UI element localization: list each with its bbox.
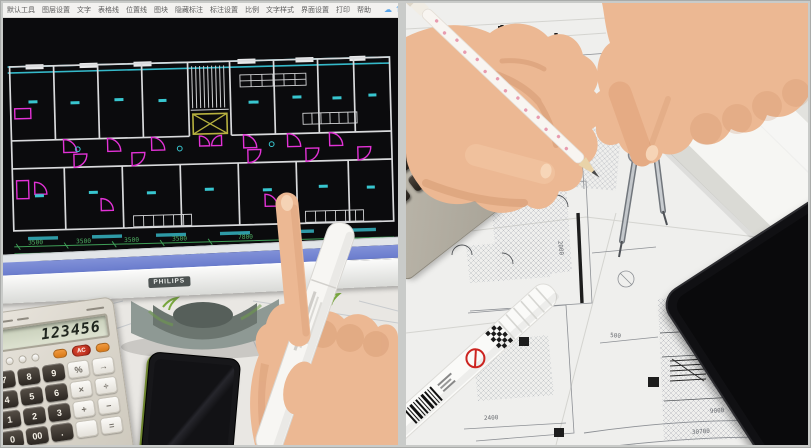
smartphone-screen xyxy=(147,359,234,445)
cad-menu-item: 文字样式 xyxy=(266,5,294,15)
cad-menu-bar: 默认工具 图层设置 文字 表格线 位置线 图块 隐藏标注 标注设置 比例 文字样… xyxy=(3,3,398,18)
memory-button xyxy=(31,353,40,362)
key-percent: % xyxy=(66,359,90,379)
cad-menu-item: 打印 xyxy=(336,5,350,15)
key-0: 0 xyxy=(3,429,25,445)
key-0: 0 xyxy=(406,184,411,227)
smartphone xyxy=(141,351,242,445)
key-multiply: × xyxy=(69,379,93,399)
key-equals: = xyxy=(99,415,123,435)
cad-dim-label: 3500 xyxy=(28,239,43,246)
key-dot: . xyxy=(50,422,74,442)
key-6: 6 xyxy=(44,383,68,403)
key-7: 7 xyxy=(3,370,16,390)
key-4: 4 xyxy=(3,389,19,409)
svg-text:30700: 30700 xyxy=(692,428,711,436)
cad-dim-label: 3500 xyxy=(124,237,139,244)
key-backspace: → xyxy=(91,356,115,376)
left-photo-cad-workstation: 默认工具 图层设置 文字 表格线 位置线 图块 隐藏标注 标注设置 比例 文字样… xyxy=(3,3,398,445)
cloud-icon: ☁ xyxy=(384,6,392,14)
cad-menu-item: 界面设置 xyxy=(301,5,329,15)
key-1: 1 xyxy=(3,409,22,429)
cad-dim-label: 7800 xyxy=(238,234,253,241)
key-plus: + xyxy=(72,399,96,419)
svg-text:9000: 9000 xyxy=(710,407,725,415)
cad-menu-item: 图层设置 xyxy=(42,5,70,15)
cad-dim-label: 3500 xyxy=(172,235,187,242)
right-photo-blueprint-desk: 2000 500 2400 xyxy=(406,3,808,445)
blueprint-dim: 500 xyxy=(610,332,622,340)
monitor-brand-logo: PHILIPS xyxy=(148,276,190,288)
cad-walls xyxy=(10,57,394,231)
key-9: 9 xyxy=(42,363,66,383)
cad-floor-plan: 3500 3500 3500 3500 7800 56900 xyxy=(3,18,398,261)
cad-menu-icon-group: ☁ ⇅ ▤ ♡ ⓘ xyxy=(384,6,398,14)
key-3: 3 xyxy=(47,402,71,422)
cad-menu-item: 帮助 xyxy=(357,5,371,15)
svg-text:2400: 2400 xyxy=(484,414,499,422)
cad-menu-item: 表格线 xyxy=(98,5,119,15)
cad-menu-item: 图块 xyxy=(154,5,168,15)
key-2: 2 xyxy=(22,406,46,426)
cad-teal-band xyxy=(28,229,376,238)
memory-button xyxy=(18,354,27,363)
photo-collage: 默认工具 图层设置 文字 表格线 位置线 图块 隐藏标注 标注设置 比例 文字样… xyxy=(0,0,811,448)
sync-icon: ⇅ xyxy=(396,6,398,14)
correct-button xyxy=(53,348,68,359)
off-button xyxy=(95,342,110,353)
calculator-keypad: 7 8 9 % → 4 5 6 × ÷ 1 2 3 + − 0 00 . = xyxy=(3,356,124,445)
cad-menu-item: 文字 xyxy=(77,5,91,15)
calculator-corner-keys: 7 4 0 1 xyxy=(406,131,454,226)
cad-room-labels xyxy=(28,91,378,197)
memory-button xyxy=(5,356,14,365)
key-8: 8 xyxy=(17,366,41,386)
cad-menu-item: 比例 xyxy=(245,5,259,15)
key-blank xyxy=(75,419,99,439)
key-divide: ÷ xyxy=(94,376,118,396)
monitor-screen: 3500 3500 3500 3500 7800 56900 xyxy=(3,18,398,261)
cad-menu-item: 隐藏标注 xyxy=(175,5,203,15)
key-00: 00 xyxy=(25,426,49,445)
key-minus: − xyxy=(97,395,121,415)
ac-button: AC xyxy=(71,344,91,358)
cad-dim-label: 3500 xyxy=(76,238,91,245)
cad-stair-core xyxy=(190,65,230,134)
cad-menu-item: 标注设置 xyxy=(210,5,238,15)
cad-menu-item: 默认工具 xyxy=(7,5,35,15)
key-5: 5 xyxy=(20,386,44,406)
cad-menu-item: 位置线 xyxy=(126,5,147,15)
